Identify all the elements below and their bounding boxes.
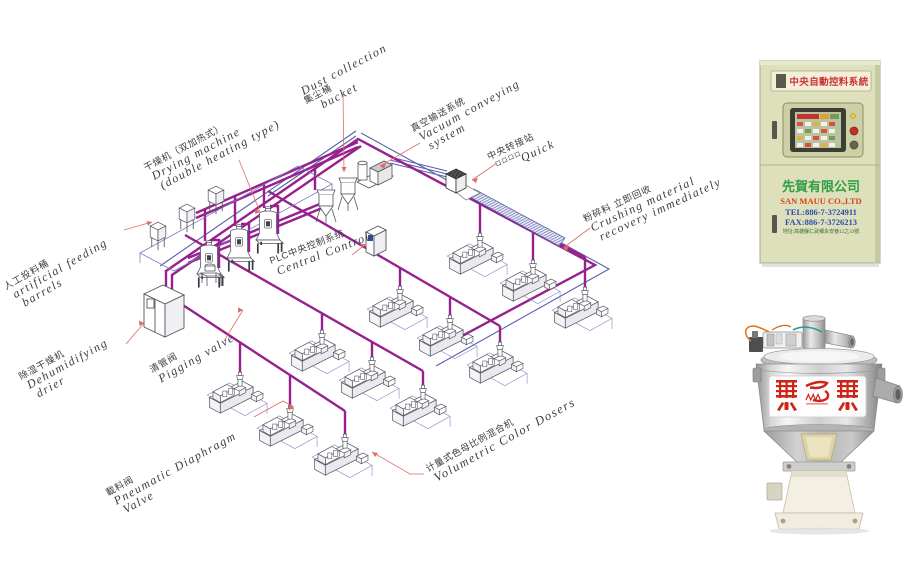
- svg-text:Volumetric Color Dosers: Volumetric Color Dosers: [432, 395, 578, 485]
- svg-text:Pneumatic Diaphragm: Pneumatic Diaphragm: [110, 428, 238, 508]
- svg-text:中央自動控料系統: 中央自動控料系統: [789, 76, 868, 88]
- svg-text:地址:高雄縣仁武鄉永安巷12之33號: 地址:高雄縣仁武鄉永安巷12之33號: [783, 228, 859, 235]
- svg-text:SAN MAUU CO.,LTD: SAN MAUU CO.,LTD: [780, 196, 861, 206]
- svg-text:Vacuum conveying: Vacuum conveying: [416, 76, 522, 143]
- svg-text:先賀有限公司: 先賀有限公司: [782, 179, 860, 194]
- svg-text:TEL:886-7-3724911: TEL:886-7-3724911: [785, 207, 857, 217]
- svg-text:FAX:886-7-3726213: FAX:886-7-3726213: [785, 217, 857, 227]
- svg-text:artificial feeding: artificial feeding: [10, 235, 110, 301]
